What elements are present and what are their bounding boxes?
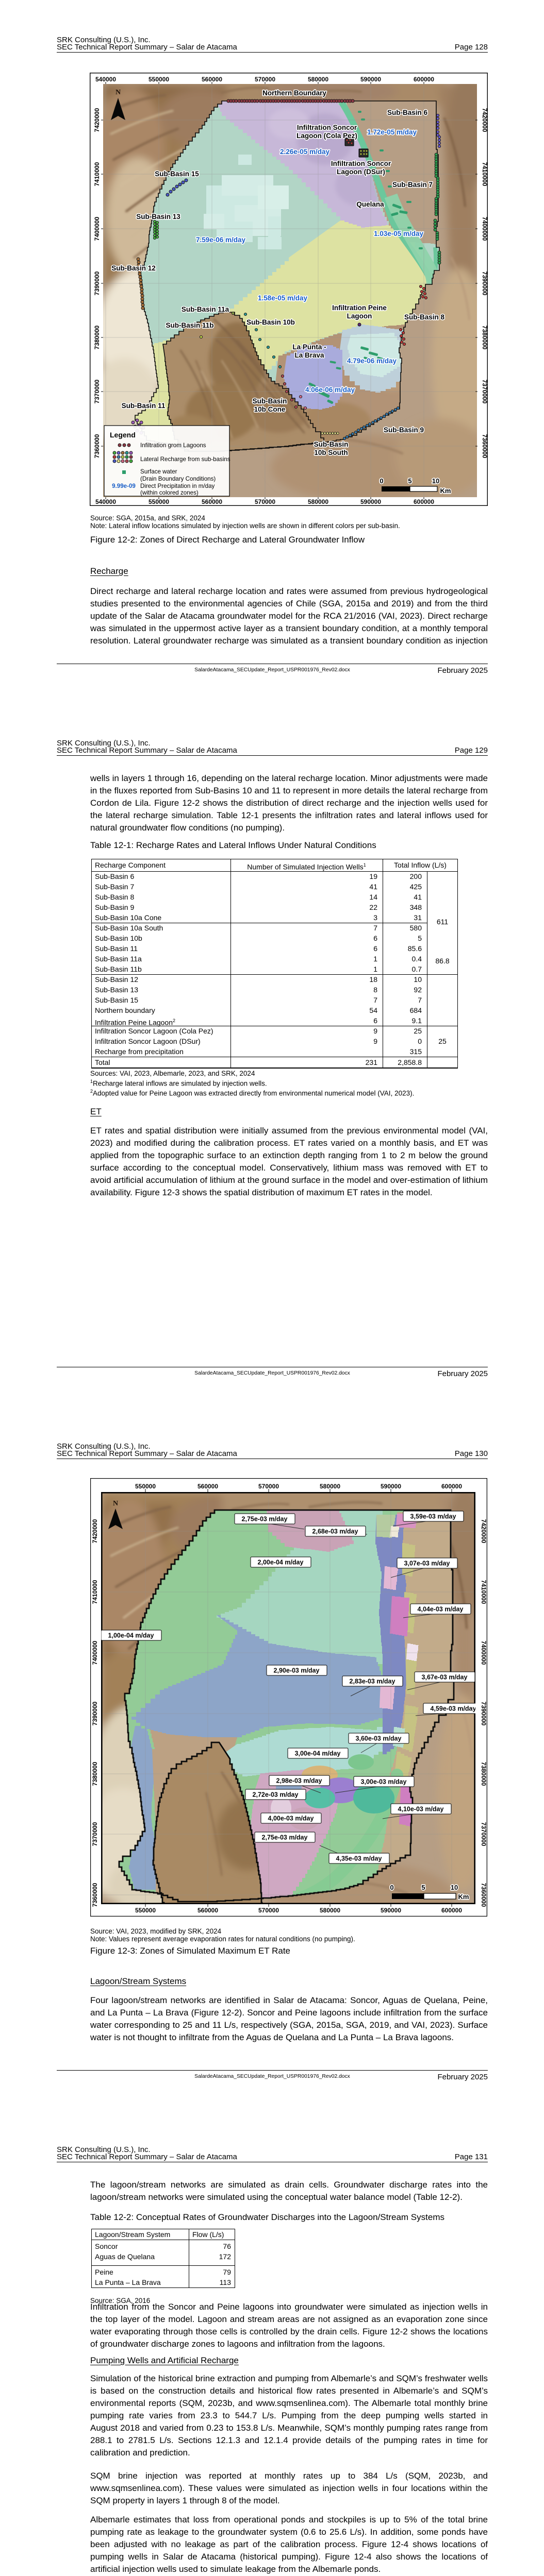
svg-text:Sub-Basin 11b: Sub-Basin 11b — [166, 321, 213, 329]
svg-text:550000: 550000 — [135, 1483, 156, 1490]
svg-text:570000: 570000 — [255, 498, 275, 505]
svg-text:0: 0 — [380, 477, 383, 485]
svg-text:7370000: 7370000 — [481, 380, 488, 404]
svg-text:7360000: 7360000 — [93, 434, 101, 458]
svg-text:Sub-Basin: Sub-Basin — [314, 440, 349, 448]
svg-text:7360000: 7360000 — [480, 1883, 487, 1907]
svg-text:2,00e-04 m/day: 2,00e-04 m/day — [258, 1559, 304, 1566]
svg-text:N: N — [113, 1500, 118, 1507]
svg-text:9.99e-09: 9.99e-09 — [112, 483, 136, 489]
svg-text:2,83e-03 m/day: 2,83e-03 m/day — [350, 1678, 395, 1685]
svg-text:540000: 540000 — [95, 76, 116, 83]
svg-text:Infiltration grom Lagoons: Infiltration grom Lagoons — [140, 442, 206, 449]
svg-text:0: 0 — [390, 1884, 393, 1891]
svg-text:7420000: 7420000 — [481, 108, 488, 132]
svg-text:590000: 590000 — [381, 1483, 401, 1490]
svg-text:2.26e-05 m/day: 2.26e-05 m/day — [280, 148, 330, 156]
svg-text:7.59e-06 m/day: 7.59e-06 m/day — [196, 236, 246, 244]
svg-text:590000: 590000 — [360, 76, 381, 83]
svg-text:Infiltration Soncor: Infiltration Soncor — [331, 160, 391, 167]
svg-text:7400000: 7400000 — [91, 1640, 98, 1665]
svg-text:4,35e-03 m/day: 4,35e-03 m/day — [336, 1855, 382, 1862]
svg-text:La Punta -: La Punta - — [292, 343, 326, 351]
svg-text:2,68e-03 m/day: 2,68e-03 m/day — [312, 1528, 358, 1535]
svg-text:3,59e-03 m/day: 3,59e-03 m/day — [410, 1513, 456, 1520]
svg-text:7400000: 7400000 — [481, 217, 488, 241]
svg-text:4.79e-06 m/day: 4.79e-06 m/day — [347, 357, 397, 365]
svg-text:560000: 560000 — [197, 1907, 218, 1914]
svg-text:Lagoon (Cola Pez): Lagoon (Cola Pez) — [296, 132, 357, 140]
svg-text:7390000: 7390000 — [480, 1702, 487, 1726]
svg-text:(Drain Boundary Conditions): (Drain Boundary Conditions) — [140, 476, 216, 482]
svg-text:Quelana: Quelana — [356, 200, 384, 208]
svg-text:Sub-Basin 12: Sub-Basin 12 — [111, 264, 156, 272]
svg-text:570000: 570000 — [255, 76, 275, 83]
svg-text:7410000: 7410000 — [91, 1580, 98, 1604]
svg-text:Lagoon (DSur): Lagoon (DSur) — [337, 168, 385, 176]
svg-text:540000: 540000 — [95, 498, 116, 505]
svg-text:7380000: 7380000 — [91, 1761, 98, 1786]
svg-text:570000: 570000 — [258, 1483, 279, 1490]
svg-text:3,00e-03 m/day: 3,00e-03 m/day — [361, 1778, 407, 1786]
svg-text:La Brava: La Brava — [294, 351, 324, 359]
svg-text:590000: 590000 — [381, 1907, 401, 1914]
svg-text:4,10e-03 m/day: 4,10e-03 m/day — [398, 1806, 444, 1813]
svg-text:Sub-Basin 7: Sub-Basin 7 — [392, 181, 433, 189]
svg-text:Km: Km — [458, 1893, 469, 1901]
svg-text:550000: 550000 — [135, 1907, 156, 1914]
svg-text:560000: 560000 — [202, 498, 222, 505]
svg-text:Km: Km — [440, 487, 451, 495]
svg-text:7370000: 7370000 — [91, 1822, 98, 1846]
svg-text:1.58e-05 m/day: 1.58e-05 m/day — [258, 294, 308, 302]
svg-text:4,00e-03 m/day: 4,00e-03 m/day — [268, 1815, 314, 1822]
svg-text:Sub-Basin 10b: Sub-Basin 10b — [246, 318, 295, 326]
svg-text:Sub-Basin 11: Sub-Basin 11 — [122, 402, 166, 410]
svg-text:7390000: 7390000 — [91, 1701, 98, 1725]
svg-text:3,67e-03 m/day: 3,67e-03 m/day — [422, 1674, 468, 1681]
svg-text:580000: 580000 — [320, 1483, 340, 1490]
svg-text:4,59e-03 m/day: 4,59e-03 m/day — [431, 1705, 476, 1713]
svg-text:Sub-Basin 6: Sub-Basin 6 — [387, 109, 428, 116]
svg-text:Lateral Recharge from sub-basi: Lateral Recharge from sub-basins — [140, 456, 230, 463]
svg-text:550000: 550000 — [149, 498, 169, 505]
svg-text:Infiltration Peine: Infiltration Peine — [332, 304, 387, 312]
svg-text:Lagoon: Lagoon — [347, 312, 372, 320]
svg-text:600000: 600000 — [414, 498, 434, 505]
svg-text:Infiltration Soncor: Infiltration Soncor — [297, 124, 357, 131]
svg-text:7410000: 7410000 — [480, 1580, 487, 1604]
svg-text:Sub-Basin 13: Sub-Basin 13 — [136, 213, 180, 221]
svg-text:570000: 570000 — [258, 1907, 279, 1914]
svg-text:7410000: 7410000 — [481, 162, 488, 187]
svg-text:7420000: 7420000 — [480, 1519, 487, 1544]
svg-text:10b South: 10b South — [314, 449, 348, 456]
svg-text:580000: 580000 — [308, 76, 328, 83]
svg-text:Sub-Basin: Sub-Basin — [253, 397, 287, 405]
svg-text:3,60e-03 m/day: 3,60e-03 m/day — [356, 1735, 402, 1742]
svg-text:7400000: 7400000 — [480, 1641, 487, 1665]
svg-text:7390000: 7390000 — [93, 271, 101, 295]
svg-text:2,75e-03 m/day: 2,75e-03 m/day — [262, 1834, 308, 1841]
svg-text:7400000: 7400000 — [93, 216, 101, 241]
svg-text:Sub-Basin 9: Sub-Basin 9 — [384, 426, 424, 434]
svg-text:Direct Precipitation in m/day: Direct Precipitation in m/day — [140, 483, 215, 489]
svg-text:Sub-Basin 8: Sub-Basin 8 — [404, 313, 445, 321]
svg-text:1.03e-05 m/day: 1.03e-05 m/day — [374, 230, 424, 238]
svg-text:7380000: 7380000 — [93, 325, 101, 349]
svg-text:(within colored zones): (within colored zones) — [140, 489, 199, 496]
svg-text:5: 5 — [408, 477, 411, 485]
svg-text:560000: 560000 — [202, 76, 222, 83]
svg-text:7410000: 7410000 — [93, 162, 101, 186]
svg-text:10b Cone: 10b Cone — [254, 405, 286, 413]
svg-text:3,00e-04 m/day: 3,00e-04 m/day — [295, 1750, 341, 1757]
svg-text:1,00e-04 m/day: 1,00e-04 m/day — [108, 1632, 154, 1639]
svg-text:Sub-Basin 15: Sub-Basin 15 — [155, 170, 199, 178]
svg-text:4.06e-06 m/day: 4.06e-06 m/day — [305, 386, 355, 394]
svg-text:2,75e-03 m/day: 2,75e-03 m/day — [242, 1516, 288, 1523]
svg-text:Surface water: Surface water — [140, 468, 177, 475]
svg-text:7370000: 7370000 — [93, 379, 101, 403]
svg-text:580000: 580000 — [308, 498, 328, 505]
svg-text:7380000: 7380000 — [480, 1762, 487, 1786]
svg-text:600000: 600000 — [441, 1907, 462, 1914]
svg-text:2,72e-03 m/day: 2,72e-03 m/day — [253, 1791, 299, 1799]
svg-text:Northern Boundary: Northern Boundary — [262, 89, 326, 97]
svg-text:5: 5 — [421, 1884, 425, 1891]
svg-text:7420000: 7420000 — [91, 1519, 98, 1543]
svg-text:7370000: 7370000 — [480, 1822, 487, 1846]
svg-text:2,98e-03 m/day: 2,98e-03 m/day — [276, 1777, 322, 1785]
svg-text:7390000: 7390000 — [481, 272, 488, 296]
svg-text:4,04e-03 m/day: 4,04e-03 m/day — [418, 1606, 464, 1613]
svg-text:7360000: 7360000 — [481, 434, 488, 459]
svg-text:7360000: 7360000 — [91, 1883, 98, 1907]
svg-text:560000: 560000 — [197, 1483, 218, 1490]
svg-text:580000: 580000 — [320, 1907, 340, 1914]
svg-text:7380000: 7380000 — [481, 326, 488, 350]
svg-text:2,90e-03 m/day: 2,90e-03 m/day — [274, 1667, 320, 1674]
svg-text:10: 10 — [451, 1884, 458, 1891]
svg-text:Legend: Legend — [110, 431, 136, 439]
svg-text:550000: 550000 — [149, 76, 169, 83]
svg-text:590000: 590000 — [360, 498, 381, 505]
svg-text:10: 10 — [432, 477, 439, 485]
svg-text:3,07e-03 m/day: 3,07e-03 m/day — [404, 1560, 450, 1567]
svg-text:600000: 600000 — [441, 1483, 462, 1490]
svg-text:N: N — [116, 89, 121, 96]
svg-text:1.72e-05 m/day: 1.72e-05 m/day — [367, 128, 417, 136]
svg-text:Sub-Basin 11a: Sub-Basin 11a — [182, 306, 229, 313]
svg-text:600000: 600000 — [414, 76, 434, 83]
svg-text:7420000: 7420000 — [93, 108, 101, 132]
